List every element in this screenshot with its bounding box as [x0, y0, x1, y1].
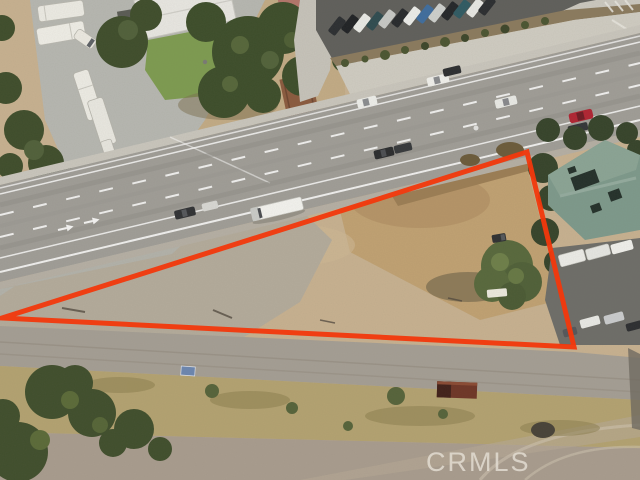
- grain-overlay: [0, 0, 640, 480]
- aerial-photo: CRMLS: [0, 0, 640, 480]
- crmls-watermark: CRMLS: [426, 447, 531, 478]
- aerial-photo-canvas: [0, 0, 640, 480]
